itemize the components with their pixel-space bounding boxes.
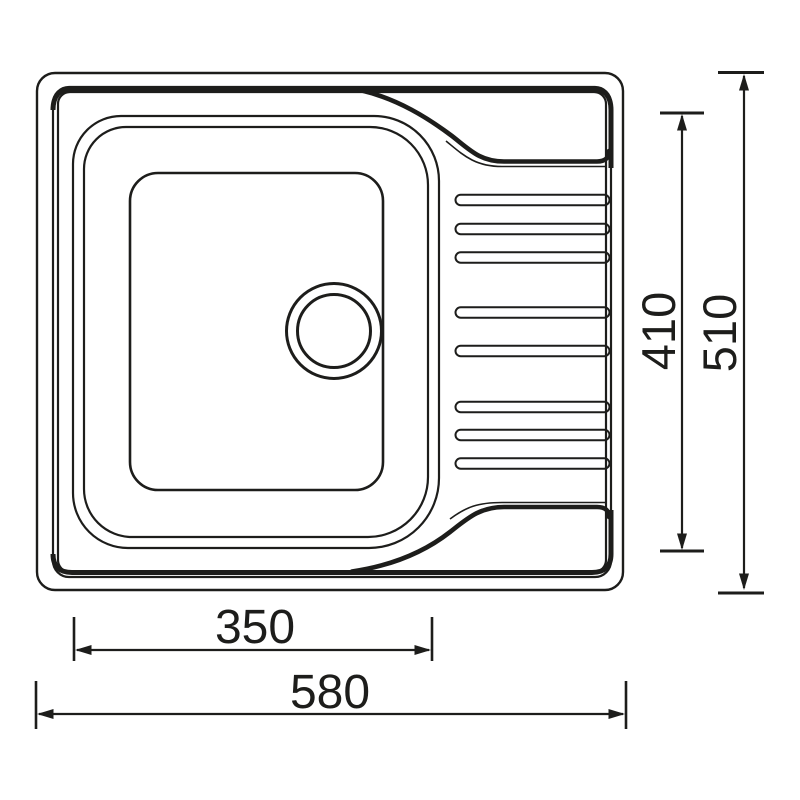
drainboard-groove <box>456 430 610 440</box>
drain-hole <box>287 284 382 379</box>
arrow-down-icon <box>739 574 749 591</box>
divider-bottom-curve <box>352 507 609 572</box>
dimension-label-overall-width: 580 <box>290 666 370 719</box>
drainboard-groove <box>456 458 610 468</box>
drainboard-groove <box>456 307 610 317</box>
arrow-left-icon <box>37 709 54 719</box>
arrow-down-icon <box>677 534 687 551</box>
sink-technical-drawing: 350 580 410 510 <box>0 0 800 800</box>
dimension-label-overall-depth: 510 <box>693 294 746 372</box>
sink-technical-drawing-page: 350 580 410 510 <box>0 0 800 800</box>
arrow-right-icon <box>415 645 432 655</box>
bowl-rim-inner <box>84 127 428 537</box>
arrow-up-icon <box>677 114 687 131</box>
divider-top-curve <box>360 90 609 162</box>
drainboard-groove <box>456 346 610 356</box>
dimension-overall-depth: 510 <box>693 73 764 594</box>
drainboard-groove <box>456 195 610 205</box>
bowl-basin <box>130 173 383 490</box>
rim-top-band <box>53 89 611 168</box>
bowl <box>73 116 439 548</box>
dimension-label-bowl-width: 350 <box>215 601 295 654</box>
drainboard-groove <box>456 252 610 262</box>
drain-inner-circle <box>298 295 371 368</box>
arrow-left-icon <box>75 645 92 655</box>
drainboard-groove <box>456 224 610 234</box>
drainboard-groove <box>456 402 610 412</box>
sink-outline <box>37 73 623 590</box>
dimension-bowl-width: 350 <box>74 601 432 661</box>
rim-bottom-band <box>53 510 611 573</box>
drain-outer-circle <box>287 284 382 379</box>
arrow-right-icon <box>609 709 626 719</box>
dimension-label-inner-depth: 410 <box>632 292 685 370</box>
dimension-overall-width: 580 <box>36 666 626 729</box>
drainboard-divider <box>352 90 609 572</box>
sink-outer-edge <box>37 73 623 590</box>
drainboard-grooves <box>456 195 610 469</box>
arrow-up-icon <box>739 74 749 91</box>
rim-inner-line <box>58 92 606 572</box>
